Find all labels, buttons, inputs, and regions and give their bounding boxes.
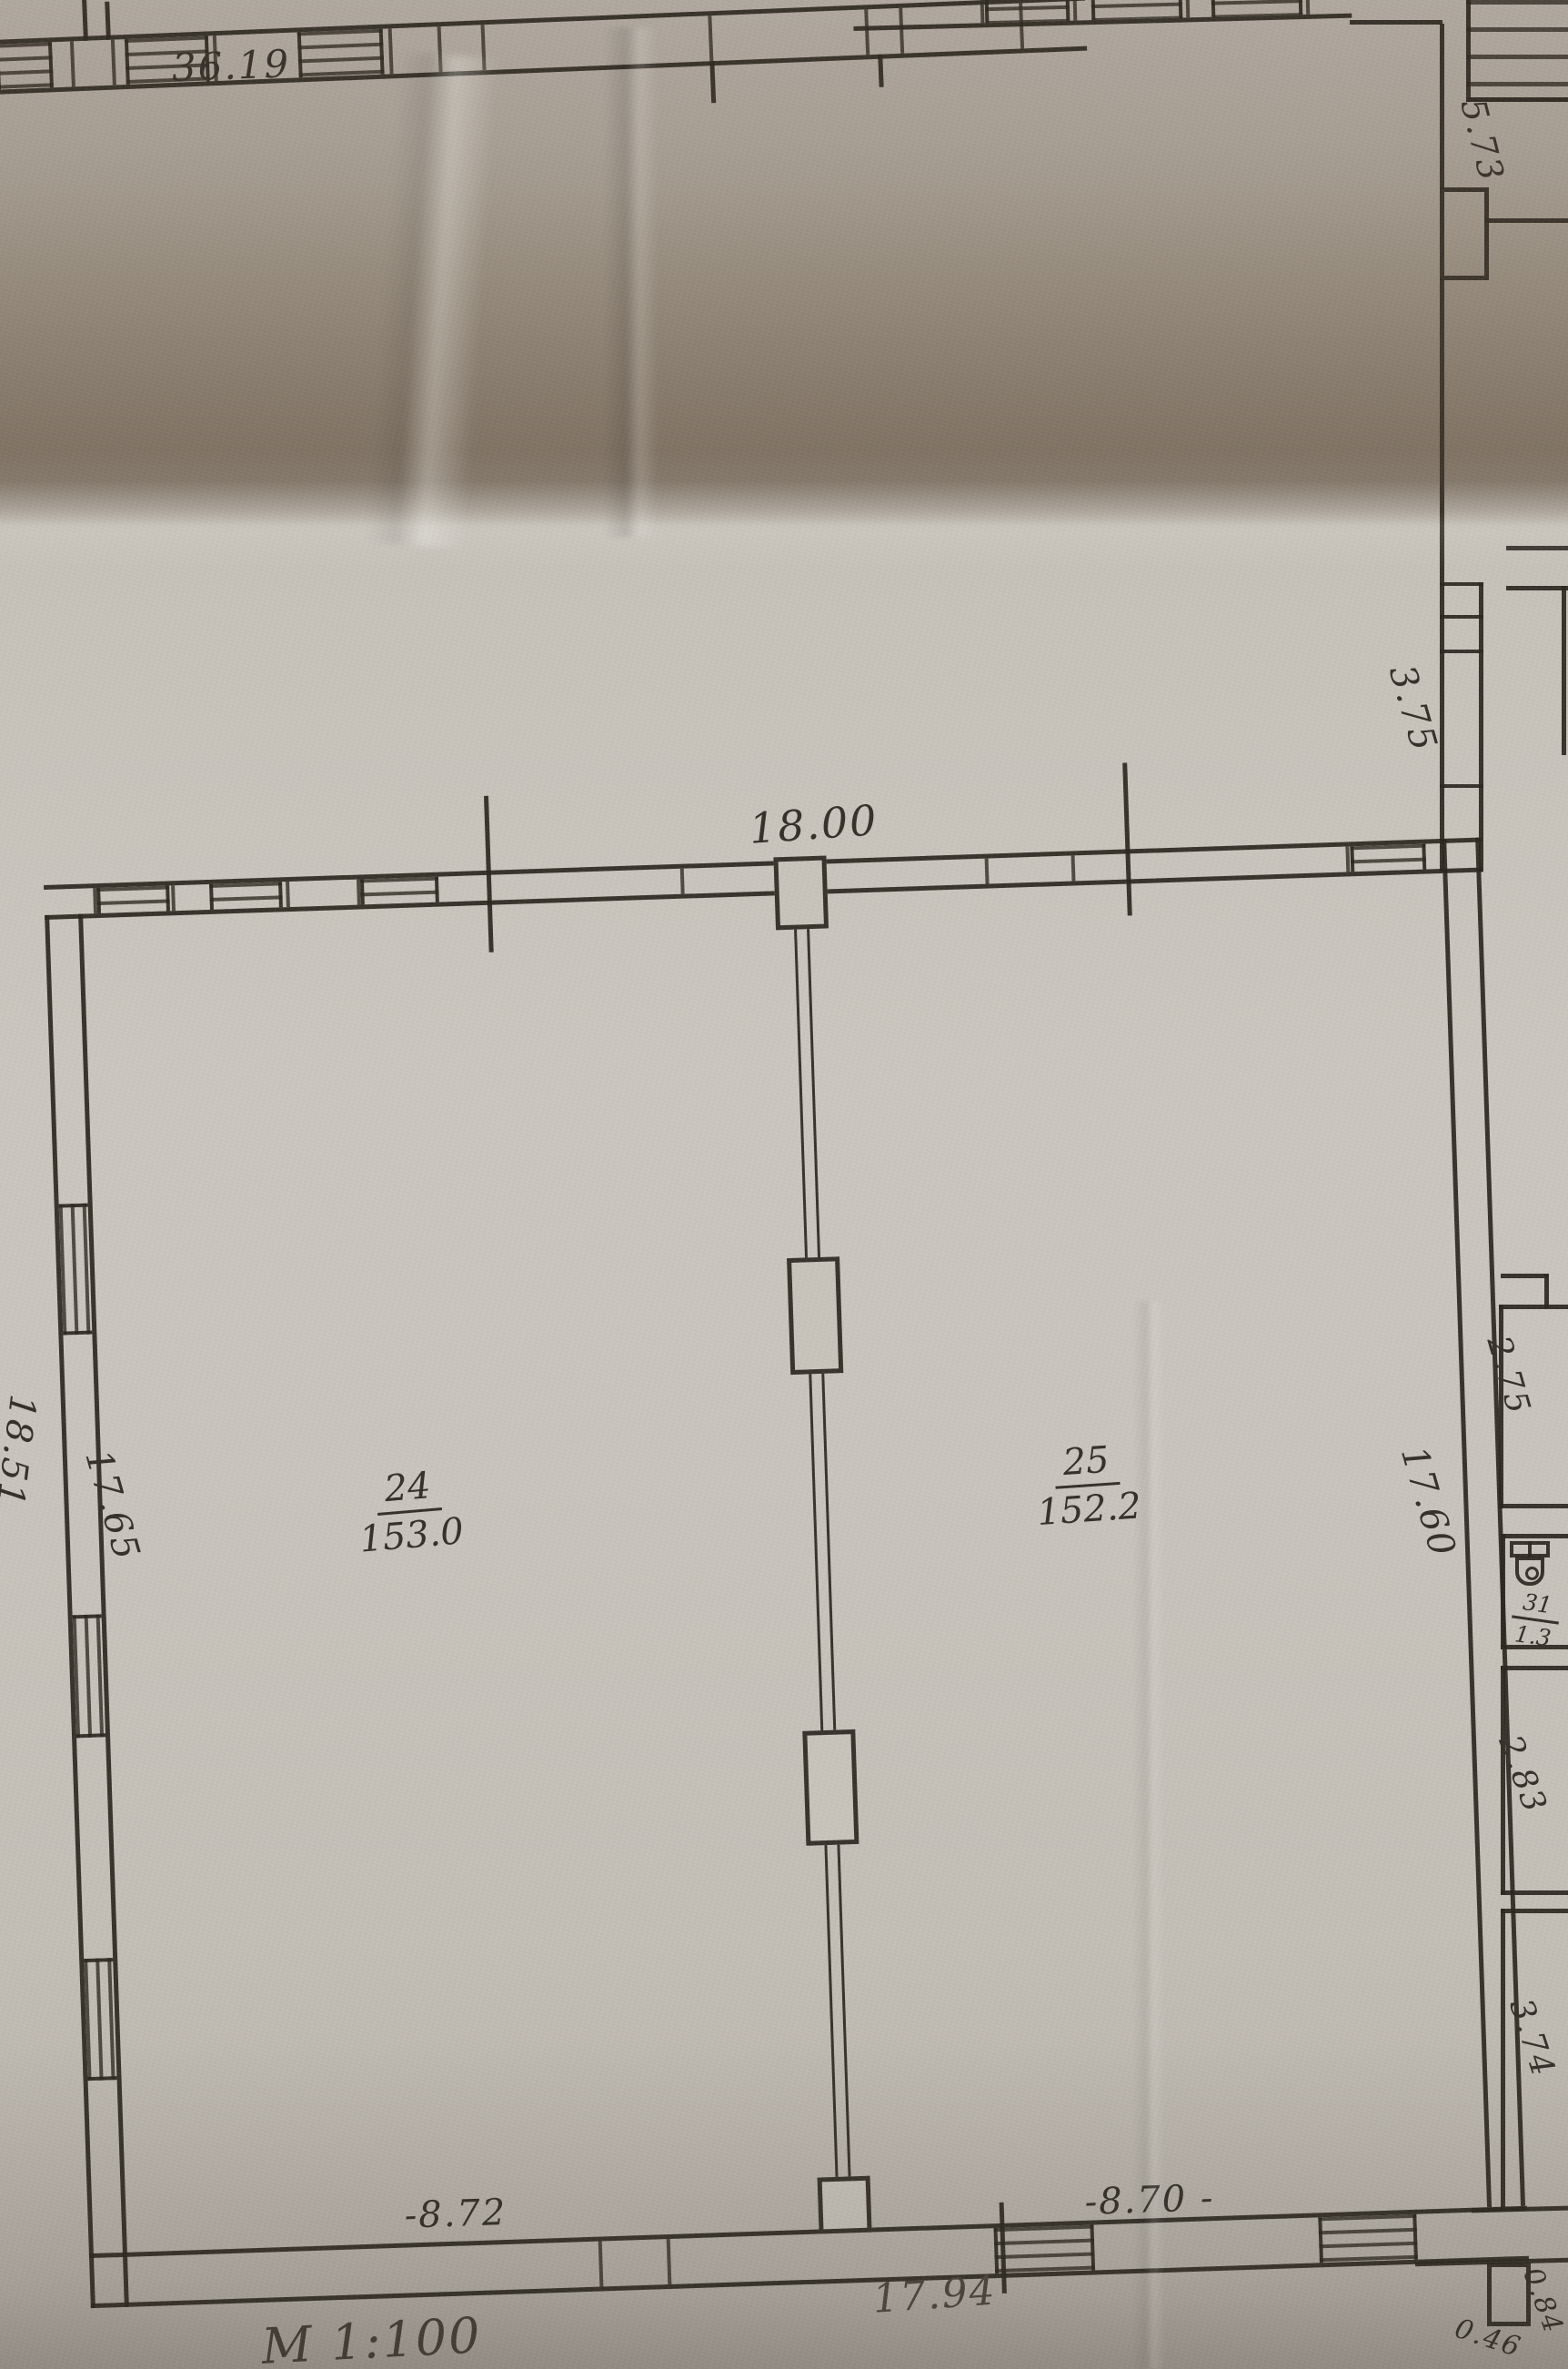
wc-left (1501, 1534, 1505, 1649)
room-25-label: 25 152.2 (1032, 1437, 1142, 1535)
window-icon (59, 1204, 93, 1336)
dim-tick (1440, 650, 1483, 653)
dim-tick-18 (1122, 762, 1132, 915)
elevation-minus-8-72: -8.72 (404, 2192, 508, 2237)
column (773, 855, 829, 930)
wall-segment (1485, 218, 1568, 223)
wall-segment (1479, 582, 1483, 872)
elevation-minus-8-70: -8.70 - (1084, 2177, 1215, 2223)
wall-segment (1440, 278, 1444, 872)
room-24-label: 24 153.0 (354, 1462, 466, 1560)
window-icon (96, 885, 170, 913)
main-left-wall (45, 914, 129, 2309)
room-number: 31 (1512, 1588, 1563, 1625)
dim-tick (1440, 582, 1483, 586)
dim-5-73: 5.73 (1452, 95, 1512, 186)
window-icon (360, 877, 439, 905)
window-icon (84, 1958, 116, 2081)
partition-line (793, 895, 840, 2232)
room-area: 153.0 (358, 1510, 466, 1561)
room-number: 24 (374, 1464, 442, 1516)
room-283-bottom (1501, 1890, 1568, 1895)
wall-segment (1544, 1274, 1549, 1308)
column (818, 2176, 872, 2234)
dim-36-19: 36.19 (171, 41, 291, 90)
top-right-wall-band (852, 0, 1352, 31)
window-icon (1091, 0, 1182, 20)
partition-line (806, 894, 853, 2231)
wall-segment (1506, 546, 1568, 550)
dim-3-75: 3.75 (1381, 660, 1445, 757)
window-icon (1318, 2214, 1418, 2263)
wall-segment (1350, 20, 1442, 25)
dim-tick (1440, 615, 1483, 619)
toilet-icon (1510, 1541, 1552, 1590)
wall-segment (1506, 586, 1568, 590)
window-icon (994, 2225, 1096, 2274)
dim-17-94: 17.94 (871, 2268, 998, 2323)
room-area: 152.2 (1036, 1485, 1142, 1534)
main-bottom-wall (89, 2206, 1529, 2308)
room-275-bottom (1499, 1504, 1568, 1508)
floor-plan-photo: 24 153.0 25 152.2 17.65 17.60 -8.72 -8.7… (0, 0, 1568, 2369)
dim-tick (1440, 784, 1483, 788)
wall-segment (1440, 24, 1444, 189)
column (787, 1256, 843, 1375)
window-icon (73, 1614, 106, 1738)
wc-label: 31 1.3 (1508, 1588, 1563, 1653)
window-icon (1211, 0, 1302, 17)
main-block: 24 153.0 25 152.2 17.65 17.60 -8.72 -8.7… (44, 838, 1529, 2312)
room-number: 25 (1052, 1438, 1120, 1489)
window-icon (209, 882, 283, 910)
window-icon (297, 29, 385, 78)
scale-note: М 1:100 (260, 2306, 483, 2369)
room-275-top (1499, 1305, 1568, 1309)
wall-segment (1562, 586, 1566, 755)
room-374-left (1501, 1909, 1505, 2209)
window-icon (1350, 844, 1426, 872)
dim-17-60: 17.60 (1392, 1442, 1463, 1562)
room-283-top (1501, 1666, 1568, 1670)
wall-pier (1440, 187, 1489, 280)
column (802, 1729, 859, 1846)
room-374-top (1501, 1909, 1568, 1913)
wall-segment (1501, 1274, 1548, 1278)
window-icon (985, 0, 1070, 23)
window-icon (1466, 0, 1568, 102)
wc-top (1501, 1534, 1568, 1538)
window-icon (0, 42, 54, 89)
dim-18-51: 18.51 (0, 1392, 44, 1509)
dim-18-00: 18.00 (748, 795, 879, 853)
